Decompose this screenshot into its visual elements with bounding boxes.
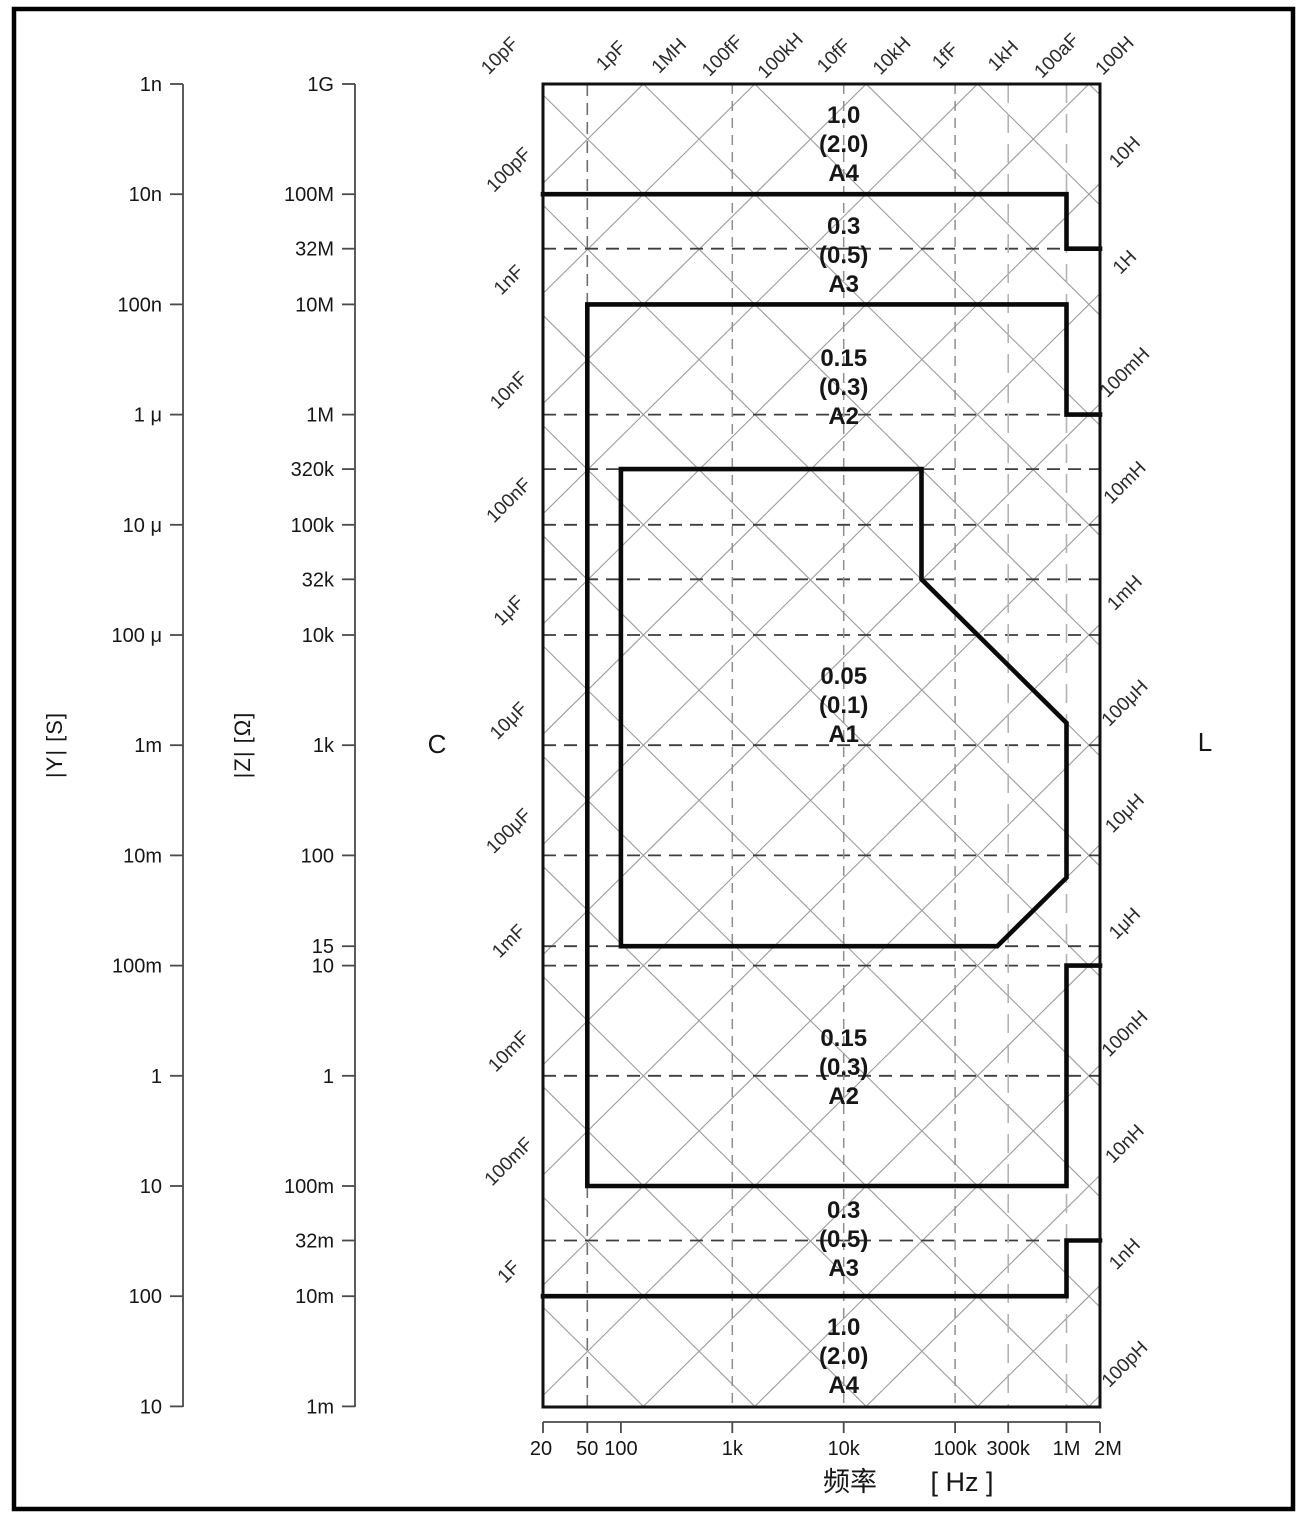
y-tick-label: 1 μ	[134, 405, 162, 427]
y-tick-label: 10m	[123, 845, 162, 867]
freq-tick-label: 20	[530, 1438, 552, 1460]
capacitance-scale-label: 1mF	[488, 921, 530, 963]
capacitance-scale-label: 10μF	[486, 698, 532, 744]
freq-tick-label: 1M	[1053, 1438, 1081, 1460]
freq-tick-label: 100k	[933, 1438, 977, 1460]
inductance-scale-label: 100mH	[1096, 344, 1154, 402]
y-axis-title: |Y| [S]	[42, 712, 67, 778]
y-tick-label: 100n	[118, 294, 163, 316]
inductance-scale-label: 1mH	[1104, 572, 1147, 615]
inductance-scale-label: 1μH	[1105, 904, 1145, 944]
inductance-gridline	[543, 514, 1100, 1065]
capacitance-gridline	[543, 646, 1100, 1197]
y-tick-label: 10	[140, 1176, 162, 1198]
region-label-line: (2.0)	[819, 1343, 868, 1370]
capacitance-scale-label: 100nF	[483, 474, 536, 527]
freq-tick-label: 300k	[987, 1438, 1031, 1460]
inductance-scale-label: 100μH	[1098, 676, 1153, 731]
capacitance-scale-label: 100mF	[481, 1134, 538, 1191]
freq-axis-title-unit: [ Hz ]	[930, 1467, 993, 1497]
region-label-line: 0.05	[820, 663, 867, 690]
region-label-line: (0.1)	[819, 692, 868, 719]
region-label-line: A2	[828, 403, 859, 430]
inductance-scale-label: 100nH	[1098, 1007, 1152, 1061]
diagonal-gridlines	[543, 0, 1100, 1518]
region-label-line: (0.5)	[819, 1226, 868, 1253]
capacitance-scale-label: 1fF	[928, 39, 962, 73]
capacitance-side-label: C	[428, 729, 447, 759]
region-label-line: 0.3	[827, 213, 860, 240]
capacitance-scale-label: 1F	[494, 1257, 525, 1288]
freq-tick-label: 10k	[828, 1438, 861, 1460]
capacitance-scale-label: 1μF	[490, 592, 528, 630]
freq-tick-label: 2M	[1094, 1438, 1122, 1460]
right-inductance-labels: 10H1H100mH10mH1mH100μH10μH1μH100nH10nH1n…	[1096, 133, 1154, 1392]
region-label-line: (0.3)	[819, 1054, 868, 1081]
region-label-line: A3	[828, 1255, 859, 1282]
capacitance-scale-label: 1nF	[490, 261, 528, 299]
left-capacitance-labels: 100pF1nF10nF100nF1μF10μF100μF1mF10mF100m…	[481, 144, 538, 1288]
capacitance-scale-label: 100pF	[483, 144, 536, 197]
z-tick-label: 10k	[302, 625, 335, 647]
z-tick-label: 10m	[295, 1286, 334, 1308]
capacitance-scale-label: 1pF	[592, 37, 630, 75]
inductance-scale-label: 10mH	[1100, 458, 1151, 509]
freq-tick-label: 100	[604, 1438, 637, 1460]
freq-axis-title-cn: 频率	[823, 1467, 877, 1497]
z-tick-label: 10	[312, 956, 334, 978]
capacitance-scale-label: 100aF	[1031, 30, 1084, 83]
region-boundary	[543, 194, 1100, 249]
inductance-scale-label: 1kH	[984, 37, 1023, 76]
inductance-scale-label: 1nH	[1105, 1235, 1144, 1274]
inductance-scale-label: 100H	[1092, 33, 1139, 80]
region-label-line: 1.0	[827, 1314, 860, 1341]
capacitance-scale-label: 10nF	[486, 368, 531, 413]
region-label-line: 0.15	[820, 1025, 867, 1052]
region-label-line: A2	[828, 1083, 859, 1110]
inductance-scale-label: 1MH	[648, 34, 691, 77]
impedance-accuracy-chart: 1G100M32M10M1M320k100k32k10k1k1001510110…	[0, 0, 1306, 1518]
y-axis: 1n10n100n1 μ10 μ100 μ1m10m100m11010010	[112, 74, 183, 1418]
y-tick-label: 1n	[140, 74, 162, 96]
capacitance-gridline	[543, 1307, 1100, 1518]
y-tick-label: 100 μ	[112, 625, 162, 647]
capacitance-gridline	[543, 536, 1100, 1087]
z-tick-label: 32k	[302, 569, 335, 591]
chart-generated-content: 1G100M32M10M1M320k100k32k10k1k1001510110…	[112, 0, 1155, 1518]
capacitance-gridline	[543, 0, 1100, 205]
region-label-line: A3	[828, 271, 859, 298]
inductance-scale-label: 10nH	[1102, 1121, 1149, 1168]
capacitance-scale-label: 10pF	[477, 33, 522, 78]
freq-tick-label: 1k	[722, 1438, 744, 1460]
z-tick-label: 100m	[284, 1176, 334, 1198]
z-tick-label: 100M	[284, 184, 334, 206]
z-tick-label: 1m	[306, 1396, 334, 1418]
region-label-line: A1	[828, 721, 859, 748]
region-label-line: A4	[828, 1372, 859, 1399]
region-label-line: 0.3	[827, 1197, 860, 1224]
z-tick-label: 1G	[307, 74, 334, 96]
y-tick-label: 1m	[134, 735, 162, 757]
inductance-gridline	[543, 734, 1100, 1285]
region-label-line: 1.0	[827, 102, 860, 129]
inductance-scale-label: 100kH	[754, 29, 808, 83]
y-tick-label: 100m	[112, 956, 162, 978]
inductance-gridline	[543, 1285, 1100, 1518]
z-tick-label: 320k	[291, 459, 335, 481]
y-tick-label: 10 μ	[123, 515, 162, 537]
capacitance-scale-label: 10fF	[813, 35, 855, 77]
capacitance-scale-label: 100fF	[698, 32, 747, 81]
capacitance-scale-label: 10mF	[485, 1027, 534, 1076]
freq-axis: 20501001k10k100k300k1M2M	[530, 1422, 1122, 1460]
z-axis: 1G100M32M10M1M320k100k32k10k1k1001510110…	[284, 74, 355, 1418]
region-label-line: (2.0)	[819, 131, 868, 158]
region-label-line: (0.3)	[819, 374, 868, 401]
z-tick-label: 32m	[295, 1231, 334, 1253]
z-tick-label: 1	[323, 1066, 334, 1088]
region-label-line: A4	[828, 160, 859, 187]
capacitance-gridline	[543, 1417, 1100, 1518]
z-tick-label: 32M	[295, 239, 334, 261]
y-tick-label: 100	[129, 1286, 162, 1308]
inductance-scale-label: 10μH	[1101, 790, 1148, 837]
freq-tick-label: 50	[576, 1438, 598, 1460]
z-tick-label: 100	[301, 845, 334, 867]
z-tick-label: 1M	[306, 405, 334, 427]
y-tick-label: 1	[151, 1066, 162, 1088]
inductance-scale-label: 10H	[1105, 133, 1144, 172]
top-scale-labels: 10pF1pF1MH100fF100kH10fF10kH1fF1kH100aF1…	[477, 29, 1138, 83]
inductance-side-label: L	[1198, 727, 1212, 757]
z-tick-label: 100k	[291, 515, 335, 537]
inductance-scale-label: 1H	[1109, 247, 1141, 279]
y-tick-label: 10	[140, 1396, 162, 1418]
z-axis-title: |Z| [Ω]	[230, 712, 255, 779]
region-label-line: (0.5)	[819, 242, 868, 269]
y-tick-label: 10n	[129, 184, 162, 206]
inductance-scale-label: 100pH	[1098, 1337, 1152, 1391]
capacitance-gridline	[543, 866, 1100, 1417]
inductance-scale-label: 10kH	[869, 33, 915, 79]
dashed-gridlines	[543, 84, 1100, 1407]
capacitance-scale-label: 100μF	[483, 805, 536, 858]
z-tick-label: 1k	[313, 735, 335, 757]
region-label-line: 0.15	[820, 345, 867, 372]
z-tick-label: 10M	[295, 294, 334, 316]
